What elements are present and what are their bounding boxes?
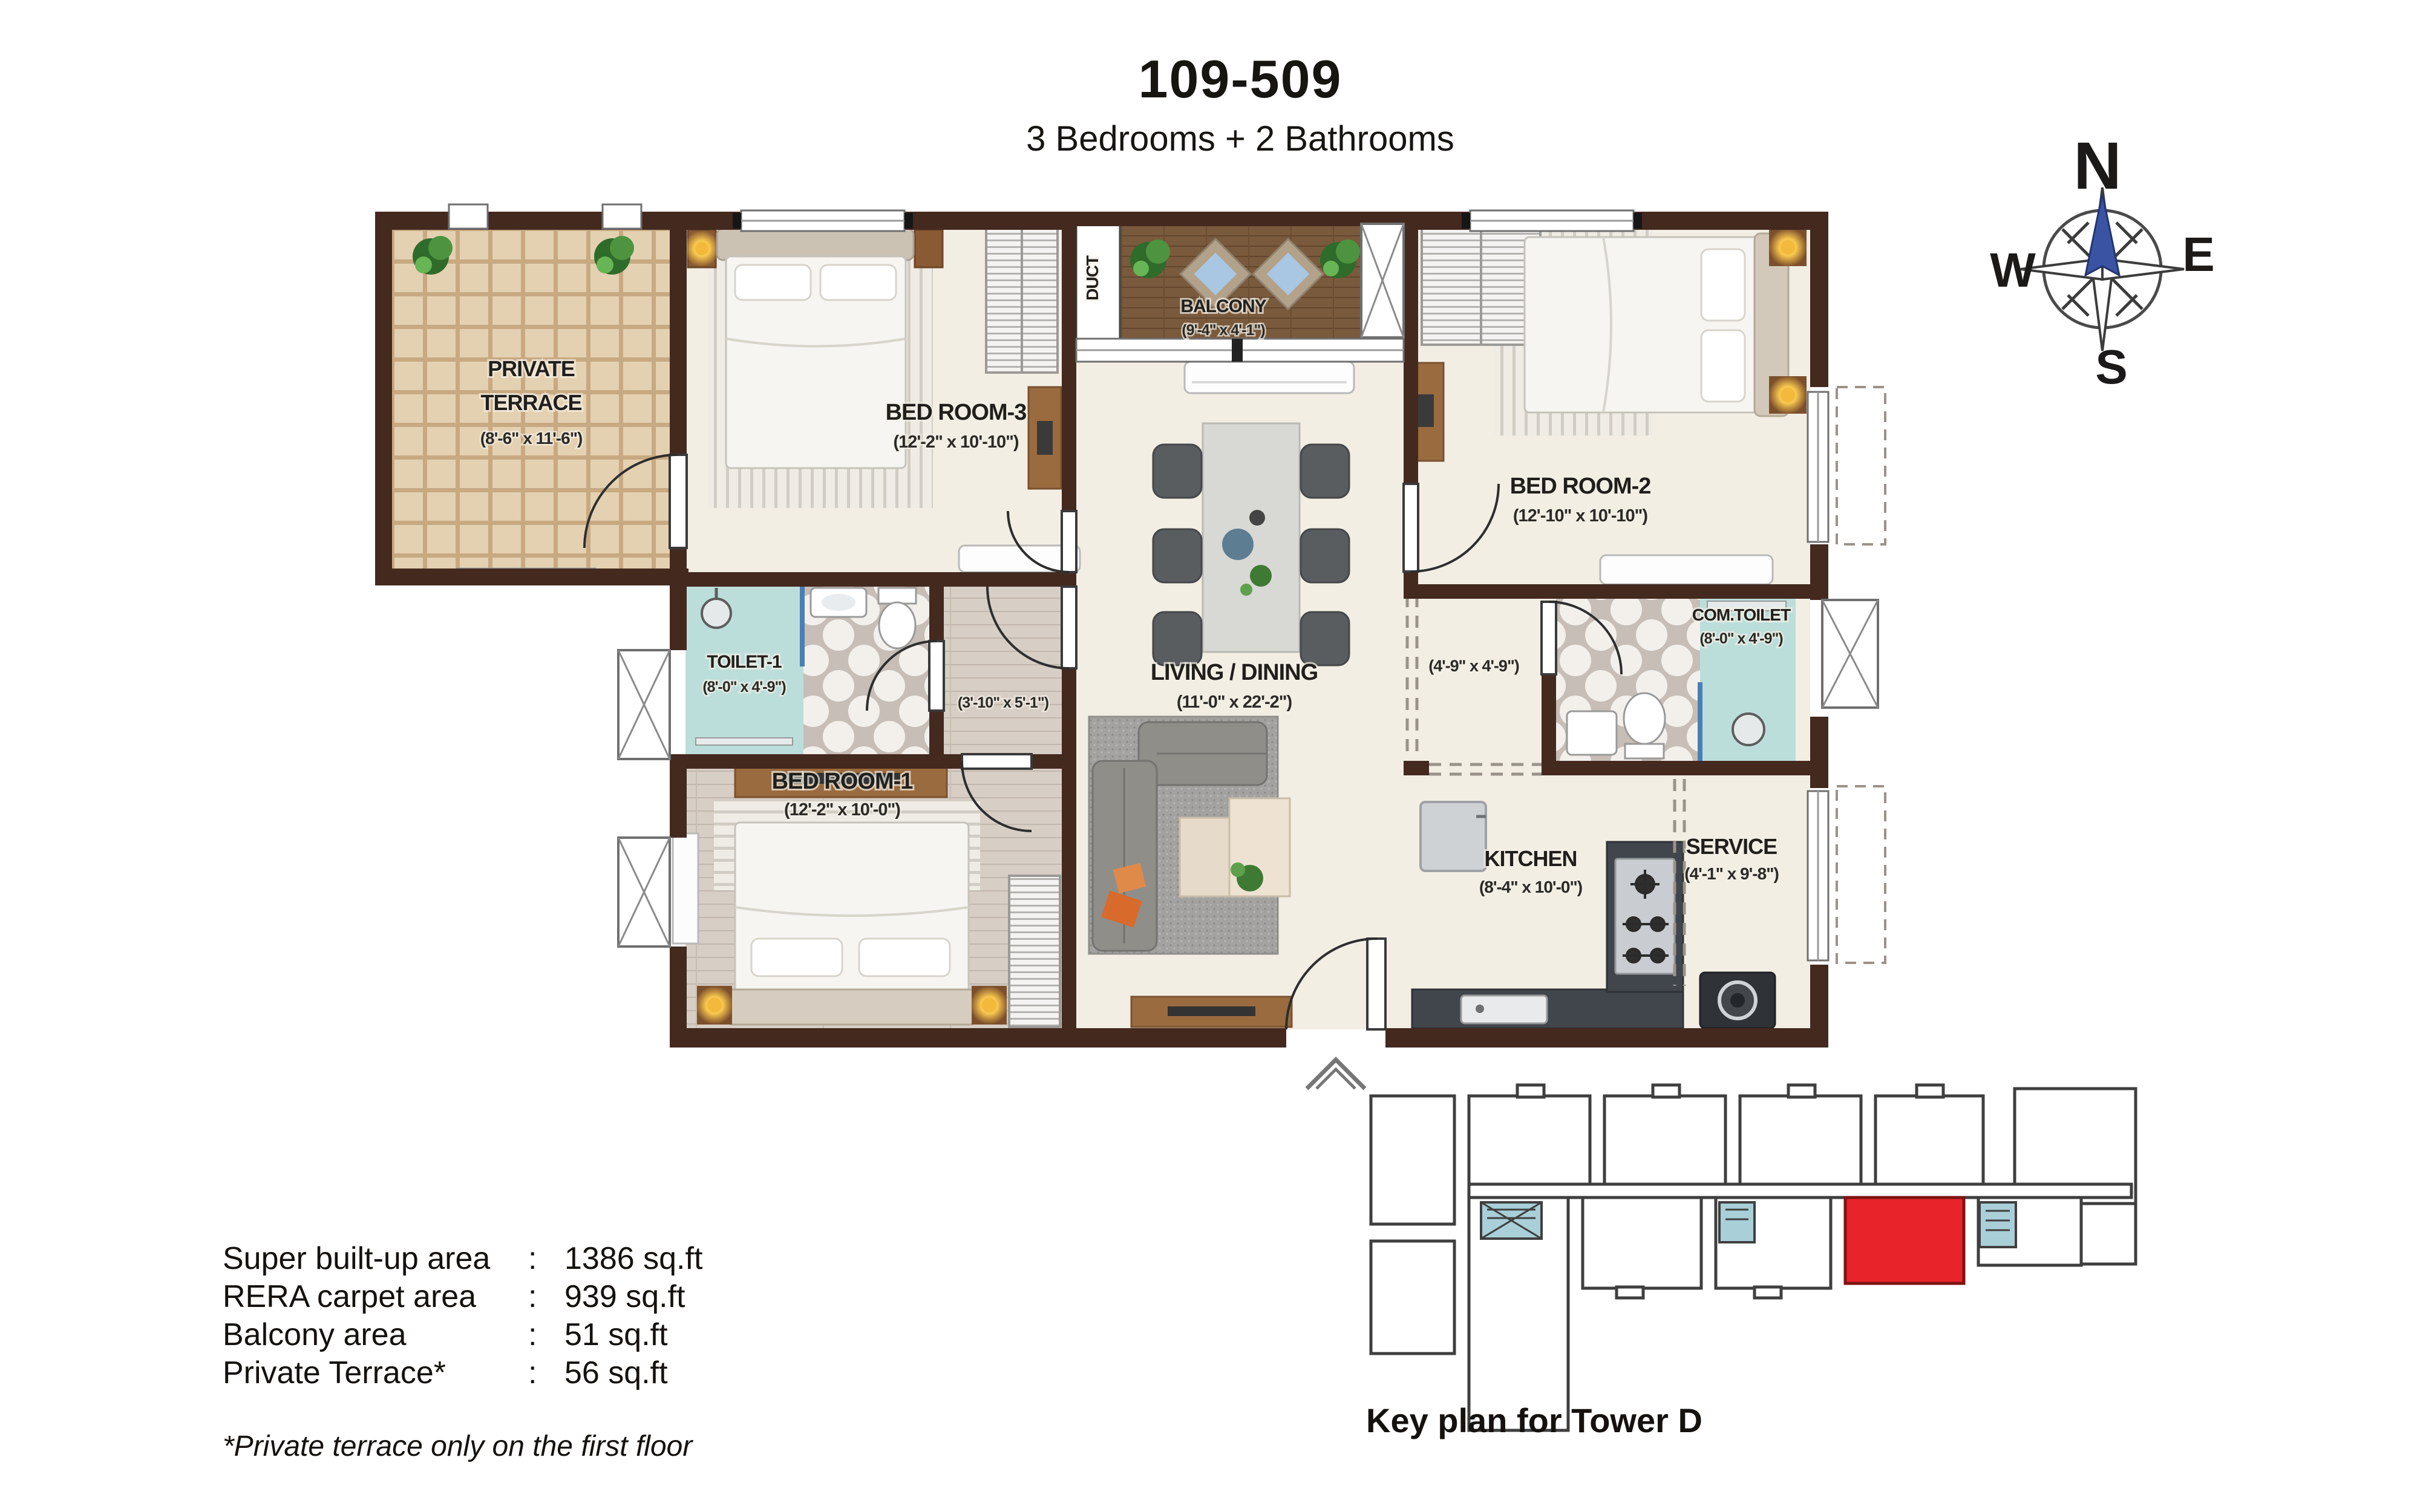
area-row: RERA carpet area : 939 sq.ft [223,1278,702,1316]
dining-chair [1153,612,1202,665]
private-terrace-label: PRIVATE [488,356,575,381]
area-value: 939 sq.ft [564,1278,685,1316]
area-colon: : [528,1316,564,1354]
passage-label: (4'-9" x 4'-9") [1428,657,1519,675]
fridge-icon [1421,802,1486,871]
keyplan-core [1719,1202,1754,1242]
bed2-ac-unit [1600,555,1773,584]
bed1-headboard [726,989,977,1025]
svg-text:(12'-10" x 10'-10"): (12'-10" x 10'-10") [1513,506,1648,526]
living-ac-unit [1185,362,1354,393]
area-value: 1386 sq.ft [564,1240,702,1278]
svg-text:(4'-1" x 9'-8"): (4'-1" x 9'-8") [1684,864,1779,883]
area-label: Super built-up area [223,1240,528,1278]
dining-chair [1301,529,1349,582]
keyplan-caption: Key plan for Tower D [1366,1401,1702,1440]
bed1-wardrobe [1009,876,1060,1027]
area-row: Super built-up area : 1386 sq.ft [223,1240,702,1278]
svg-text:(12'-2" x 10'-0"): (12'-2" x 10'-0") [784,800,900,820]
area-label: Private Terrace* [223,1354,528,1392]
area-row: Balcony area : 51 sq.ft [223,1316,702,1354]
duct-label: DUCT [1083,255,1102,301]
keyplan-drawing [1371,1085,2136,1430]
floorplan-page: PRIVATE TERRACE (8'-6" x 11'-6") BED ROO… [0,0,2420,1512]
corridor-floor [944,587,1062,754]
terrace-door-leaf [670,455,687,548]
page-subtitle: 3 Bedrooms + 2 Bathrooms [756,119,1724,159]
svg-text:(9'-4" x 4'-1"): (9'-4" x 4'-1") [1182,322,1265,339]
service-label: SERVICE [1686,834,1777,859]
bedroom2-label: BED ROOM-2 [1510,474,1651,499]
toilet-icon [1624,693,1665,744]
kitchen-sink [1461,996,1547,1023]
area-colon: : [528,1354,564,1392]
comtoilet-door-leaf [1542,602,1556,674]
dining-chair [1153,529,1202,582]
bedroom3-label: BED ROOM-3 [886,400,1027,425]
svg-text:(8'-0" x 4'-9"): (8'-0" x 4'-9") [702,679,786,696]
bed2-door-leaf [1404,484,1418,572]
shower-icon [1733,714,1764,745]
corridor-door-leaf [1062,587,1076,668]
corridor-label: (3'-10" x 5'-1") [958,694,1049,711]
svg-text:(8'-6" x 11'-6"): (8'-6" x 11'-6") [480,429,583,448]
dining-chair [1301,612,1349,665]
area-row: Private Terrace* : 56 sq.ft [223,1354,702,1392]
dining-chair [1153,445,1202,498]
keyplan-highlighted-unit [1845,1198,1964,1283]
entrance-arrow-icon [1307,1060,1365,1089]
svg-text:(12'-2" x 10'-10"): (12'-2" x 10'-10") [893,432,1018,452]
compass-north: N [2073,129,2121,203]
compass-needle-icon [2085,194,2119,275]
shower-icon [702,599,731,628]
area-colon: : [528,1278,564,1316]
svg-text:(8'-4" x 10'-0"): (8'-4" x 10'-0") [1479,878,1582,896]
area-value: 56 sq.ft [564,1354,668,1392]
bed3-door-leaf [1062,511,1076,572]
kitchen-label: KITCHEN [1485,846,1577,871]
sink-icon [1567,711,1617,755]
svg-text:TERRACE: TERRACE [480,390,581,415]
bed1-mattress [735,823,969,1005]
terrace-footnote: *Private terrace only on the first floor [223,1430,692,1463]
area-value: 51 sq.ft [564,1316,668,1354]
living-dining-label: LIVING / DINING [1151,660,1318,685]
area-colon: : [528,1240,564,1278]
bed3-headboard [717,229,914,260]
svg-text:(8'-0" x 4'-9"): (8'-0" x 4'-9") [1699,630,1783,647]
page-title: 109-509 [756,48,1724,110]
balcony-label: BALCONY [1180,296,1266,316]
compass-rose: N W E S [1990,129,2214,394]
area-label: RERA carpet area [223,1278,528,1316]
dining-chair [1301,445,1349,498]
comtoilet-label: COM.TOILET [1692,605,1791,624]
compass-east: E [2182,227,2214,281]
area-summary: Super built-up area : 1386 sq.ft RERA ca… [223,1240,702,1392]
window-handle [1232,339,1243,362]
service-furniture [1700,973,1775,1028]
toilet1-label: TOILET-1 [707,652,781,672]
bed1-door-leaf [962,754,1032,769]
entrance-door-leaf [1367,939,1385,1029]
toilet-icon [879,602,915,648]
bedroom1-label: BED ROOM-1 [772,769,914,794]
toilet1-door-leaf [929,641,944,711]
bed1-dresser [673,833,698,943]
area-label: Balcony area [223,1316,528,1354]
svg-text:(11'-0" x 22'-2"): (11'-0" x 22'-2") [1177,692,1292,712]
keyplan-core [1980,1202,2016,1247]
compass-south: S [2095,340,2127,394]
compass-west: W [1990,243,2036,297]
